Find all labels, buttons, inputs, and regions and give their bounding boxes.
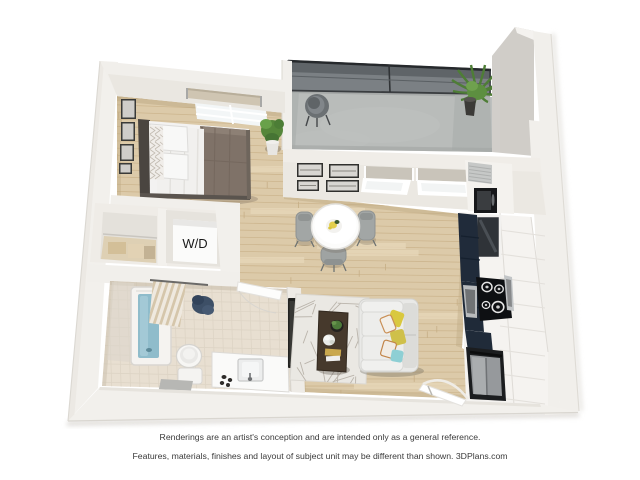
svg-text:W/D: W/D xyxy=(182,236,207,251)
